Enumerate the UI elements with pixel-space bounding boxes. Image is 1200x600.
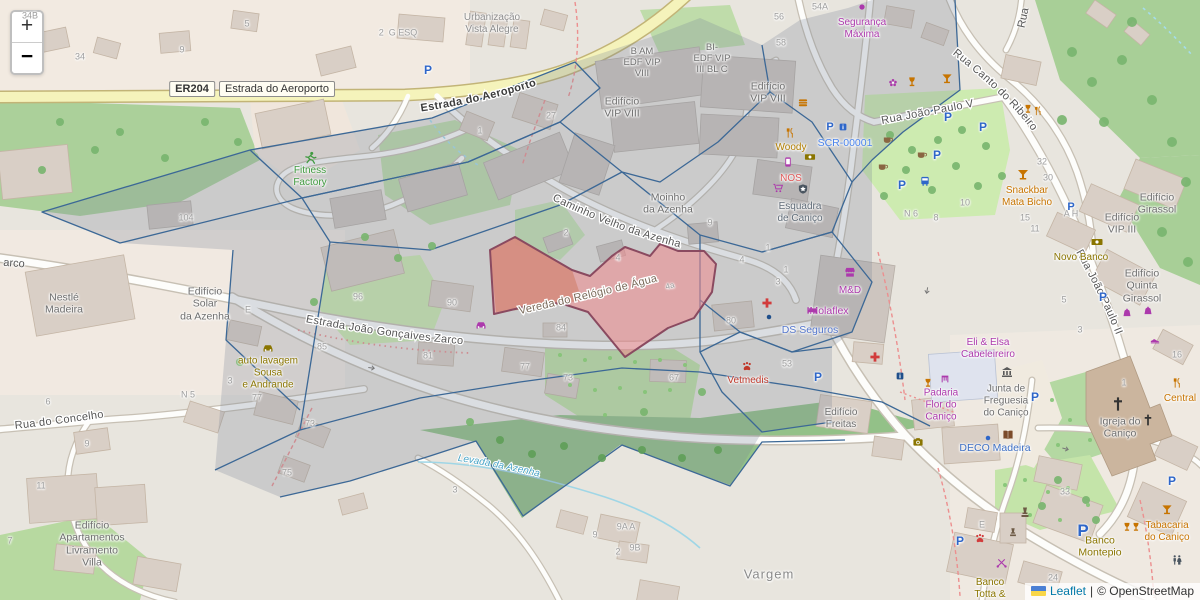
leaflet-link[interactable]: Leaflet (1050, 584, 1086, 598)
attribution-bar: Leaflet | © OpenStreetMap (1025, 583, 1200, 600)
ukraine-flag-icon (1031, 586, 1046, 596)
osm-link[interactable]: © OpenStreetMap (1097, 584, 1194, 598)
zoom-in-button[interactable]: + (12, 12, 42, 42)
map-canvas[interactable]: Estrada do Aeroporto Caminho Velho da Az… (0, 0, 1200, 600)
svg-text:Rua do Concelho: Rua do Concelho (14, 409, 104, 432)
zoom-control: + − (10, 10, 44, 75)
zoom-out-button[interactable]: − (12, 42, 42, 73)
road-ref-shield: ER204 (169, 81, 215, 97)
attribution-separator: | (1090, 584, 1093, 598)
road-name-box: Estrada do Aeroporto (219, 81, 335, 97)
